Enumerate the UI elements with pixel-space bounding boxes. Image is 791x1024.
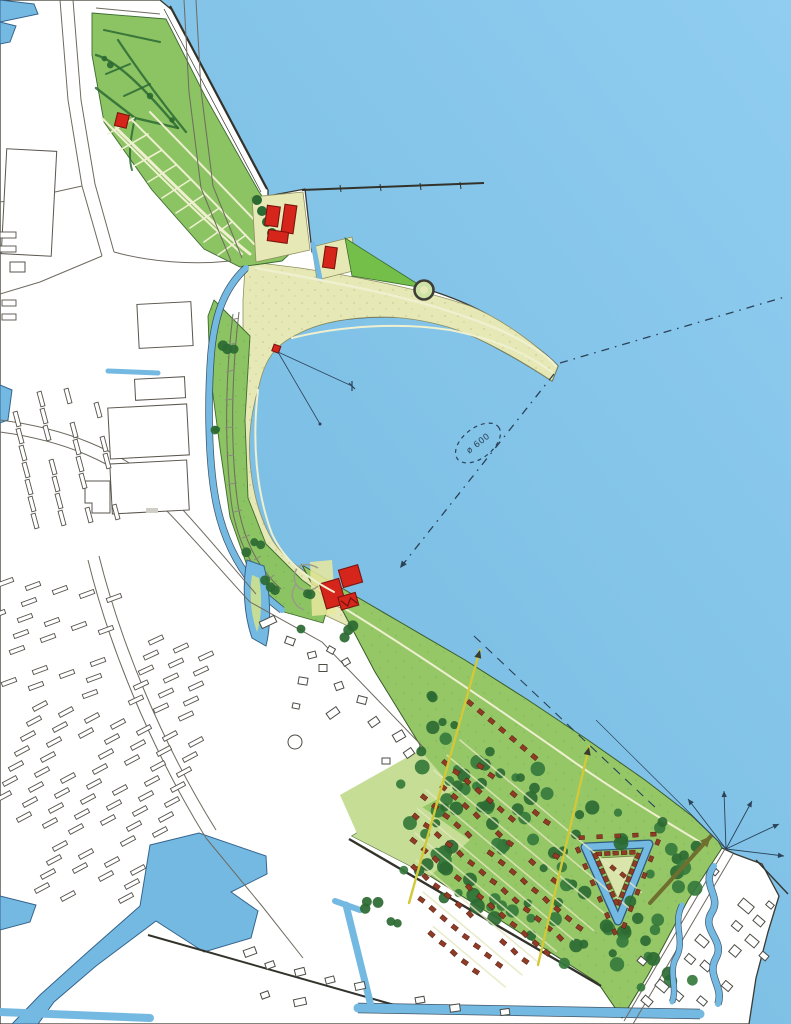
allotment-building xyxy=(114,113,129,129)
masterplan-svg: ø 600 xyxy=(0,0,791,1024)
circle-feature xyxy=(415,281,434,300)
masterplan-map: ø 600 xyxy=(0,0,791,1024)
small-kiosk xyxy=(272,344,281,353)
